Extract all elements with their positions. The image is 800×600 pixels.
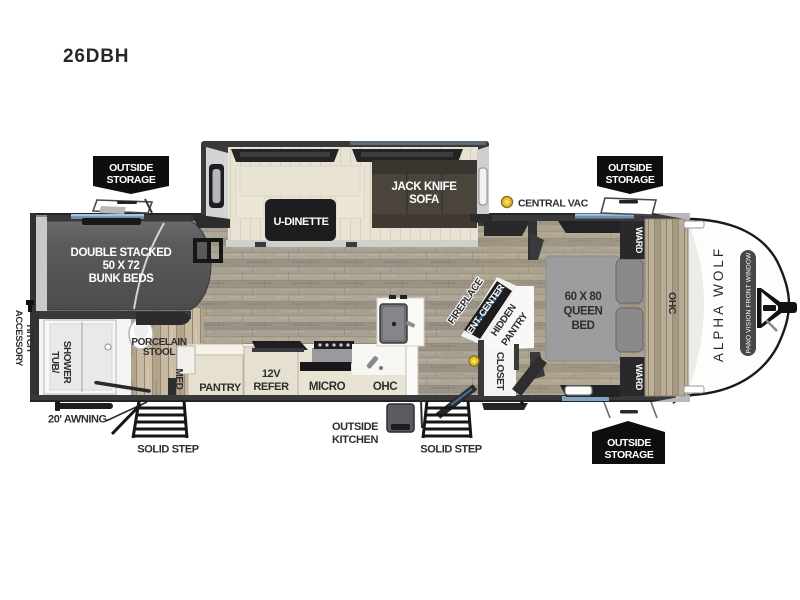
svg-text:TUB/: TUB/ [49, 351, 60, 373]
svg-text:STOOL: STOOL [143, 347, 176, 358]
svg-text:26DBH: 26DBH [63, 46, 129, 67]
svg-text:OUTSIDE: OUTSIDE [109, 162, 153, 174]
svg-text:DOUBLE STACKED: DOUBLE STACKED [71, 247, 172, 259]
svg-text:STORAGE: STORAGE [606, 174, 655, 186]
svg-text:SOFA: SOFA [409, 194, 439, 206]
svg-text:20' AWNING: 20' AWNING [48, 414, 107, 426]
svg-text:60 X 80: 60 X 80 [565, 291, 602, 303]
svg-text:OUTSIDE: OUTSIDE [332, 421, 378, 433]
svg-text:STORAGE: STORAGE [107, 174, 156, 186]
svg-text:JACK KNIFE: JACK KNIFE [391, 181, 457, 193]
svg-text:12V: 12V [262, 368, 281, 380]
svg-text:ACCESSORY: ACCESSORY [13, 310, 24, 367]
svg-text:REFER: REFER [253, 381, 289, 393]
svg-text:STORAGE: STORAGE [605, 449, 654, 461]
svg-text:OHC: OHC [666, 292, 678, 315]
svg-text:U-DINETTE: U-DINETTE [273, 216, 328, 228]
svg-text:WARD: WARD [634, 227, 644, 254]
svg-text:PANO VISION FRONT WINDOW: PANO VISION FRONT WINDOW [746, 252, 753, 354]
svg-text:BED: BED [571, 320, 594, 332]
svg-text:CLOSET: CLOSET [494, 352, 505, 390]
svg-text:OUTSIDE: OUTSIDE [608, 162, 652, 174]
svg-text:WARD: WARD [634, 364, 644, 391]
svg-text:OUTSIDE: OUTSIDE [607, 437, 651, 449]
svg-text:KITCHEN: KITCHEN [332, 434, 379, 446]
svg-text:SHOWER: SHOWER [61, 341, 72, 385]
svg-text:50 X 72: 50 X 72 [103, 260, 140, 272]
svg-text:CENTRAL VAC: CENTRAL VAC [518, 198, 589, 210]
svg-text:QUEEN: QUEEN [564, 306, 603, 318]
svg-text:SOLID STEP: SOLID STEP [137, 444, 198, 456]
svg-text:OHC: OHC [373, 381, 397, 393]
svg-text:PANTRY: PANTRY [199, 382, 242, 394]
svg-text:ALPHA WOLF: ALPHA WOLF [711, 246, 726, 362]
svg-text:SOLID STEP: SOLID STEP [420, 444, 481, 456]
svg-text:BUNK BEDS: BUNK BEDS [89, 273, 154, 285]
svg-text:HITCH: HITCH [24, 324, 35, 352]
svg-text:MICRO: MICRO [309, 381, 346, 393]
